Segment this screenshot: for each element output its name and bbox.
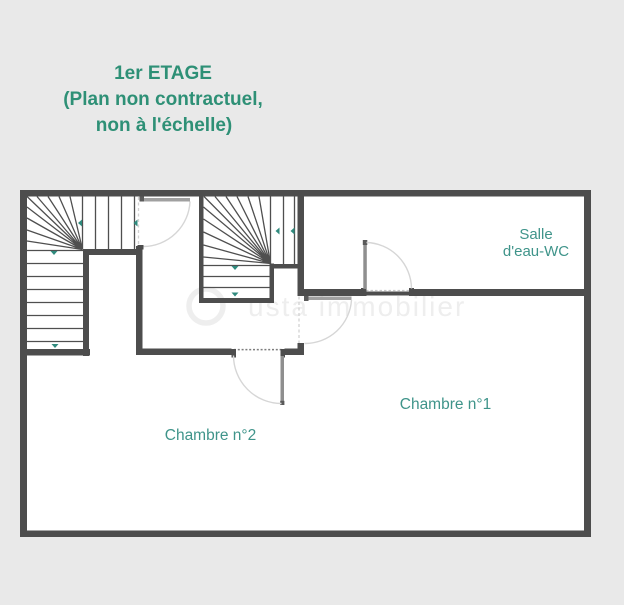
svg-text:(Plan non contractuel,: (Plan non contractuel, bbox=[63, 89, 263, 110]
svg-text:Salle: Salle bbox=[519, 226, 552, 243]
svg-text:1er ETAGE: 1er ETAGE bbox=[114, 63, 212, 84]
svg-text:Chambre n°2: Chambre n°2 bbox=[165, 427, 257, 444]
svg-text:Chambre n°1: Chambre n°1 bbox=[400, 396, 492, 413]
svg-text:non à l'échelle): non à l'échelle) bbox=[96, 115, 233, 136]
svg-text:d'eau-WC: d'eau-WC bbox=[503, 243, 569, 260]
